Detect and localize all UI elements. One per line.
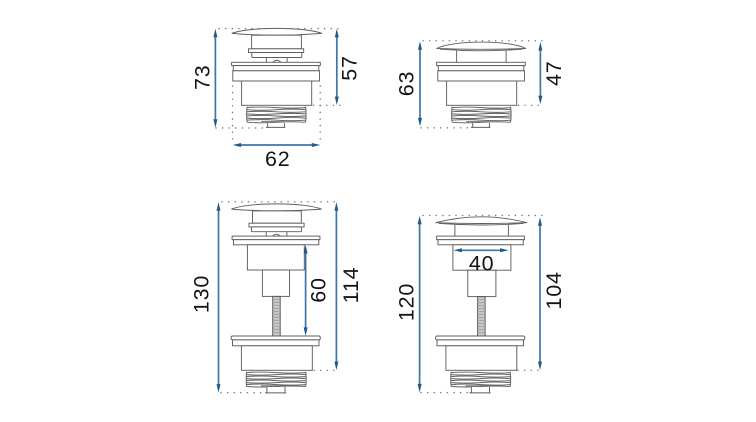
svg-text:130: 130 [190, 275, 214, 313]
svg-text:57: 57 [338, 55, 362, 81]
svg-text:120: 120 [395, 283, 419, 321]
svg-text:47: 47 [542, 61, 566, 87]
svg-text:62: 62 [265, 147, 291, 171]
svg-text:60: 60 [306, 277, 330, 303]
svg-text:63: 63 [394, 71, 418, 97]
svg-text:40: 40 [469, 251, 495, 275]
svg-text:114: 114 [339, 267, 363, 304]
svg-text:104: 104 [542, 271, 566, 309]
svg-text:73: 73 [191, 65, 215, 91]
